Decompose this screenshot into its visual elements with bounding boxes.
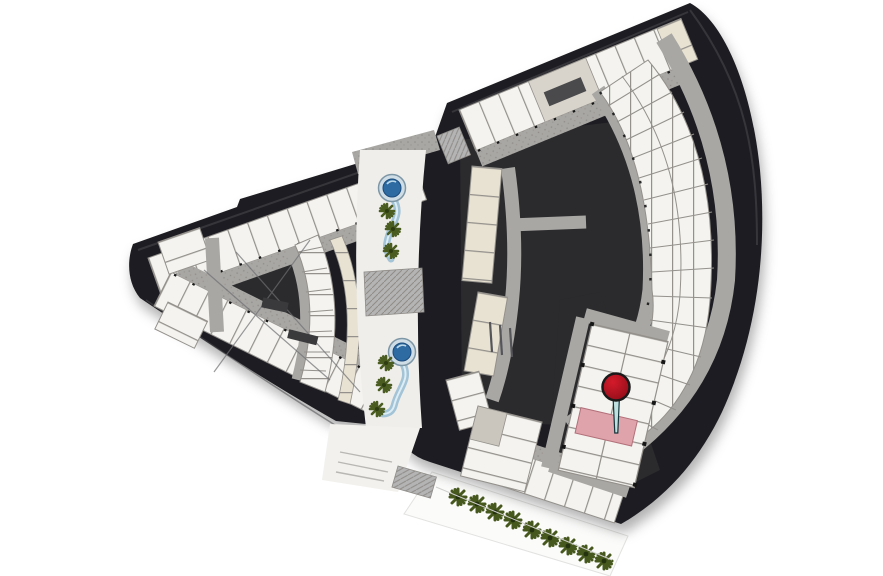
pin-head[interactable] <box>603 374 630 401</box>
right-wing-courtyard-spur <box>510 222 586 225</box>
floor-plan-stage <box>0 0 883 576</box>
walkway-bridge <box>364 268 424 316</box>
floor-plan-svg <box>0 0 883 576</box>
